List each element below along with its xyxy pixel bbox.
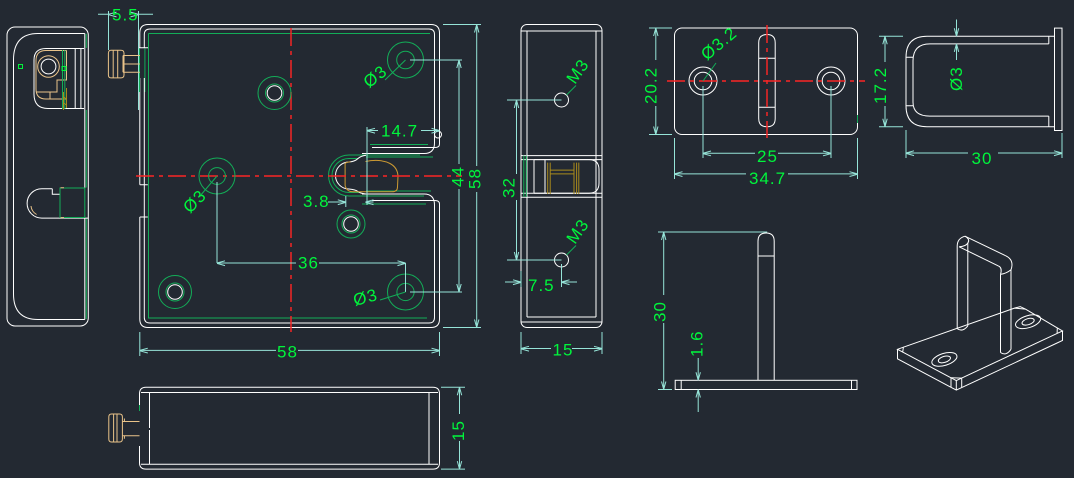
- svg-text:34.7: 34.7: [749, 169, 786, 188]
- svg-text:30: 30: [972, 149, 993, 168]
- svg-text:30: 30: [651, 301, 670, 322]
- svg-text:25: 25: [757, 147, 778, 166]
- svg-text:3.8: 3.8: [303, 192, 330, 211]
- svg-text:36: 36: [298, 254, 319, 273]
- svg-text:58: 58: [277, 343, 298, 362]
- svg-text:1.6: 1.6: [688, 330, 707, 357]
- svg-text:14.7: 14.7: [381, 122, 418, 141]
- svg-text:5.5: 5.5: [112, 6, 139, 25]
- svg-text:7.5: 7.5: [528, 276, 555, 295]
- svg-text:58: 58: [466, 168, 485, 189]
- svg-text:32: 32: [500, 177, 519, 198]
- svg-text:20.2: 20.2: [642, 67, 661, 104]
- svg-text:15: 15: [449, 420, 468, 441]
- svg-text:Ø3: Ø3: [947, 66, 966, 91]
- svg-text:15: 15: [553, 341, 574, 360]
- svg-text:17.2: 17.2: [871, 67, 890, 104]
